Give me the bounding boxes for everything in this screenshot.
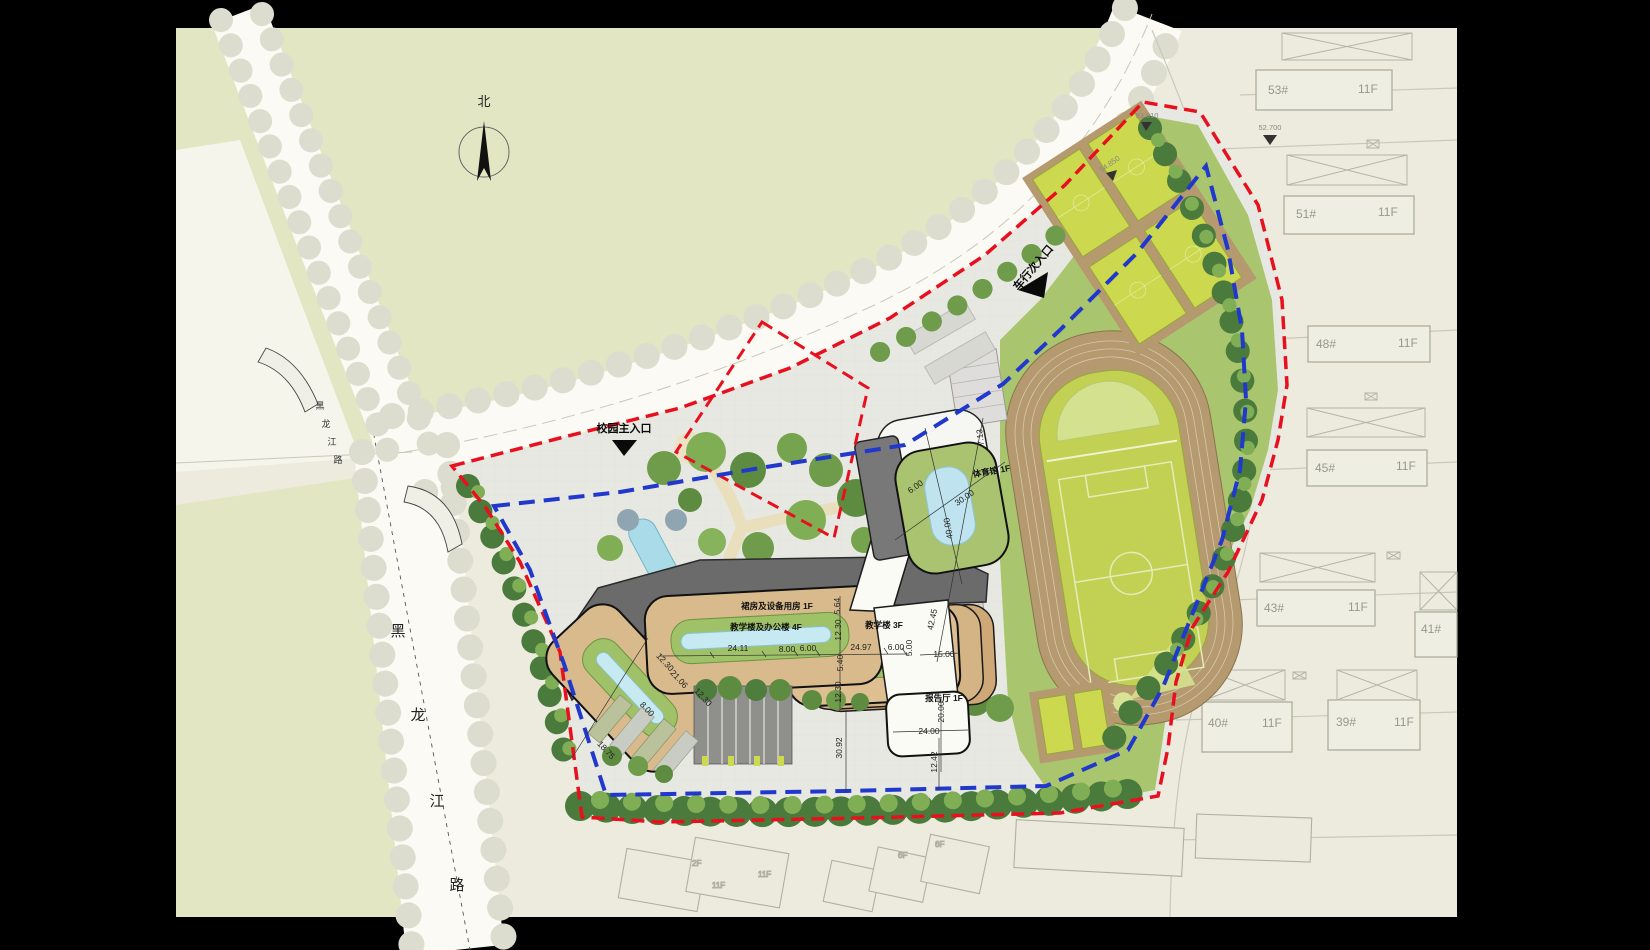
building-40-floors: 11F bbox=[1262, 716, 1282, 730]
site-plan-screenshot: 53# 11F 51# 11F 48# 11F 45# 11F 43# 11F … bbox=[0, 0, 1650, 950]
main-entrance-label: 校园主入口 bbox=[597, 421, 652, 435]
road-char: 黑 bbox=[390, 623, 405, 640]
building-43-floors: 11F bbox=[1348, 600, 1368, 614]
building-43-id: 43# bbox=[1264, 601, 1284, 615]
dim: 15.00 bbox=[933, 649, 955, 659]
dim: 20.00 bbox=[936, 701, 946, 723]
building-45-floors: 11F bbox=[1396, 459, 1416, 473]
dim: 6.00 bbox=[888, 642, 905, 652]
elevation-label: 53.910 bbox=[1136, 111, 1159, 120]
building-51: 51# 11F bbox=[1284, 196, 1414, 234]
road-char: 龙 bbox=[410, 707, 425, 724]
dim: 12.30 bbox=[833, 681, 843, 703]
building-41-id: 41# bbox=[1421, 622, 1441, 636]
building-39-id: 39# bbox=[1336, 715, 1356, 729]
site-plan-canvas: 53# 11F 51# 11F 48# 11F 45# 11F 43# 11F … bbox=[0, 0, 1650, 950]
building-51-id: 51# bbox=[1296, 207, 1316, 221]
dim: 30.92 bbox=[834, 737, 844, 759]
road-char: 江 bbox=[429, 793, 444, 810]
building-41: 41# bbox=[1415, 612, 1457, 657]
building-45-id: 45# bbox=[1315, 461, 1335, 475]
road-char: 路 bbox=[333, 454, 342, 465]
podium-label: 裙房及设备用房 1F bbox=[740, 601, 813, 611]
dim: 12.42 bbox=[929, 751, 939, 773]
dim: 24.97 bbox=[850, 642, 872, 652]
north-label: 北 bbox=[477, 94, 490, 109]
south-building-label: 6F bbox=[935, 840, 944, 849]
building-45: 45# 11F bbox=[1307, 450, 1427, 486]
road-char: 江 bbox=[327, 437, 336, 447]
dim: 5.00 bbox=[904, 639, 914, 656]
south-building-label: 11F bbox=[758, 870, 771, 879]
dim: 6.00 bbox=[800, 643, 817, 653]
dim: 12.30 bbox=[833, 619, 843, 641]
building-51-floors: 11F bbox=[1378, 205, 1398, 219]
dim: 24.11 bbox=[728, 643, 749, 653]
building-39: 39# 11F bbox=[1328, 700, 1420, 750]
south-building-label: 11F bbox=[712, 881, 725, 890]
building-39-floors: 11F bbox=[1394, 715, 1414, 729]
building-53: 53# 11F bbox=[1256, 70, 1392, 110]
teaching-label: 教学楼 3F bbox=[864, 620, 903, 630]
small-courts-south bbox=[1029, 680, 1119, 764]
road-char: 路 bbox=[449, 877, 464, 894]
building-40: 40# 11F bbox=[1202, 702, 1292, 752]
building-48: 48# 11F bbox=[1308, 326, 1430, 362]
south-building-label: 2F bbox=[692, 859, 701, 868]
dim: 24.00 bbox=[918, 726, 940, 736]
elevation-label: 52.700 bbox=[1259, 123, 1282, 132]
building-53-id: 53# bbox=[1268, 83, 1288, 97]
building-40-id: 40# bbox=[1208, 716, 1228, 730]
building-43: 43# 11F bbox=[1257, 590, 1375, 626]
building-48-floors: 11F bbox=[1398, 336, 1418, 350]
dim: 5.64 bbox=[832, 597, 842, 614]
building-48-id: 48# bbox=[1316, 337, 1336, 351]
building-53-floors: 11F bbox=[1358, 82, 1378, 96]
road-char: 黑 bbox=[315, 401, 324, 411]
dim: 8.00 bbox=[779, 644, 796, 654]
road-char: 龙 bbox=[321, 418, 330, 429]
teaching-office-label: 教学楼及办公楼 4F bbox=[729, 622, 802, 632]
dim: 5.40 bbox=[835, 654, 845, 671]
dim: 7.13 bbox=[974, 428, 986, 446]
south-building-label: 6F bbox=[898, 851, 907, 860]
